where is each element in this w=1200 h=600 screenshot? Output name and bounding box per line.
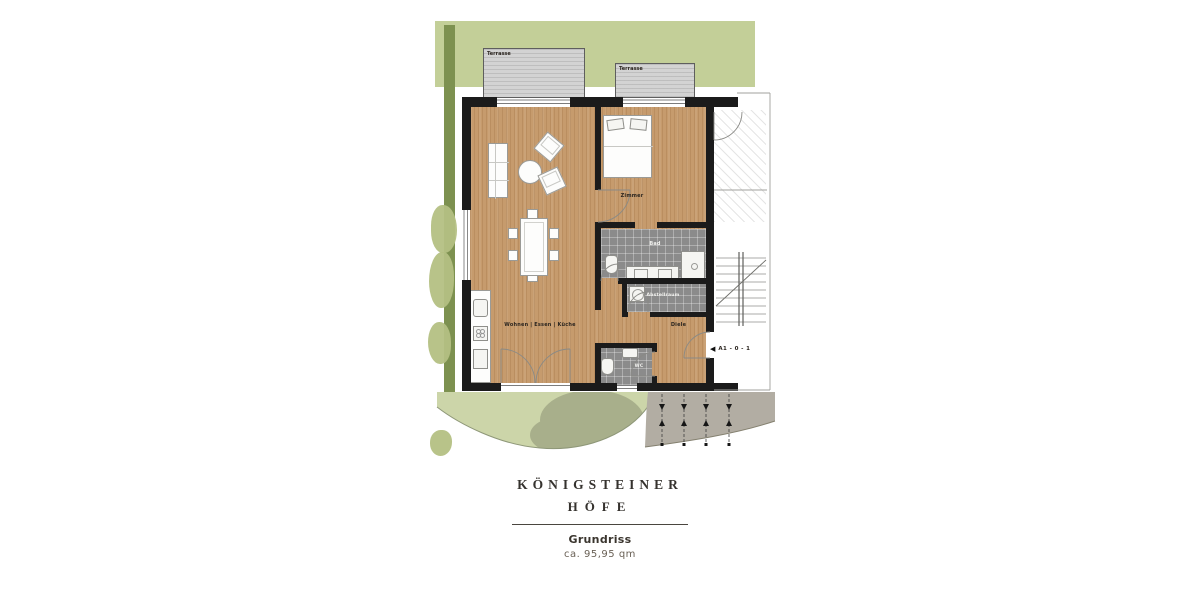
wall-segment xyxy=(570,383,617,391)
wall-segment xyxy=(570,97,623,107)
wall-segment xyxy=(622,312,628,317)
wall-segment xyxy=(650,312,706,317)
plan-area: ca. 95,95 qm xyxy=(400,549,800,560)
wall-segment xyxy=(706,358,714,391)
brand-name-line1: KÖNIGSTEINER xyxy=(400,477,800,493)
wc-sink xyxy=(622,348,638,358)
terrace-right-label: Terrasse xyxy=(619,66,643,72)
branding-block: KÖNIGSTEINER HÖFE Grundriss ca. 95,95 qm xyxy=(400,477,800,560)
wall-segment xyxy=(462,280,471,391)
wall-segment xyxy=(462,383,501,391)
wall-segment xyxy=(595,222,635,228)
unit-code: A1 - 0 - 1 xyxy=(718,346,750,352)
sofa xyxy=(488,143,508,198)
dining-chair xyxy=(549,250,559,261)
wall-segment xyxy=(595,343,601,391)
room-label-hall: Diele xyxy=(656,322,701,328)
cooktop xyxy=(473,326,488,341)
wall-segment xyxy=(706,107,714,332)
dining-chair xyxy=(508,228,518,239)
wall-segment xyxy=(595,107,601,190)
wall-segment xyxy=(595,343,655,348)
dining-chair xyxy=(549,228,559,239)
room-label-bath: Bad xyxy=(630,241,680,247)
wall-segment xyxy=(685,97,738,107)
bed xyxy=(603,115,652,178)
wall-segment xyxy=(618,278,706,284)
shower xyxy=(681,251,705,279)
floorplan-page: Terrasse Terrasse xyxy=(0,0,1200,600)
bush xyxy=(429,252,454,308)
dining-table xyxy=(520,218,548,276)
pillow xyxy=(606,118,624,131)
brand-divider xyxy=(512,524,688,525)
wall-segment xyxy=(657,222,706,228)
wall-segment xyxy=(652,376,657,385)
kitchen-counter xyxy=(470,290,491,383)
terrace-left-label: Terrasse xyxy=(487,51,511,57)
room-label-bedroom: Zimmer xyxy=(597,193,667,199)
dining-chair xyxy=(508,250,518,261)
wall-segment xyxy=(652,343,657,352)
plan-title: Grundriss xyxy=(400,533,800,546)
bush xyxy=(428,322,451,364)
pillow xyxy=(629,118,647,131)
stairwell-lobby xyxy=(714,110,766,222)
coffee-table xyxy=(518,160,542,184)
wall-segment xyxy=(462,97,471,210)
toilet xyxy=(605,255,618,274)
room-label-storage: Abstellraum xyxy=(630,293,696,299)
unit-direction-arrow-icon: ◀ xyxy=(710,345,715,353)
kitchen-cabinet xyxy=(473,349,488,369)
bush xyxy=(430,430,452,456)
unit-marker: ◀ A1 - 0 - 1 xyxy=(710,345,750,353)
room-label-wc: WC xyxy=(628,364,650,370)
kitchen-sink xyxy=(473,299,488,317)
wall-segment xyxy=(622,284,627,312)
brand-name-line2: HÖFE xyxy=(400,499,800,515)
wall-segment xyxy=(595,228,601,310)
room-label-living: Wohnen | Essen | Küche xyxy=(480,322,600,328)
toilet xyxy=(601,358,614,375)
bush xyxy=(431,205,457,253)
